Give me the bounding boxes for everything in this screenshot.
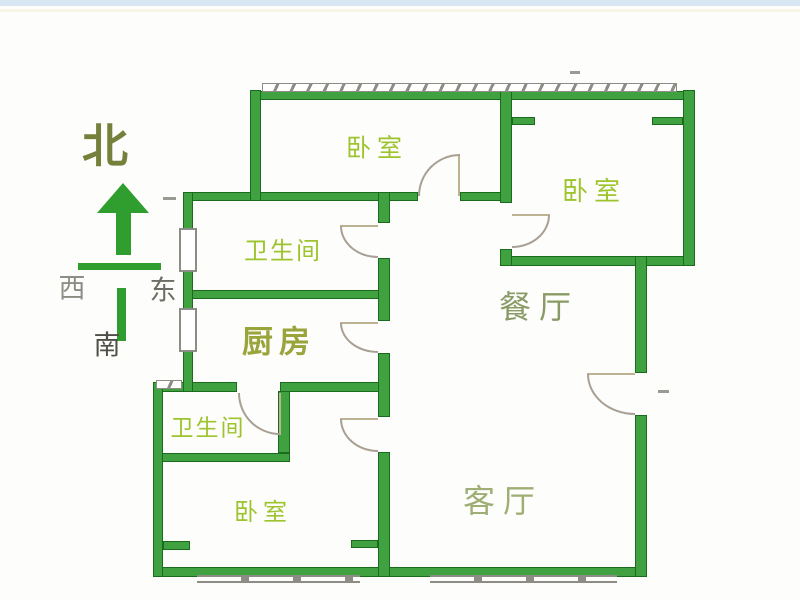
wall-left-upper (183, 192, 193, 392)
window-small-left (156, 380, 182, 389)
wall-center-seg2 (378, 258, 390, 321)
wall-stub (351, 540, 378, 548)
wall-bathroom-upper-bottom (183, 290, 390, 299)
wall-center-seg3 (378, 353, 390, 417)
window-bottom-bedroom (197, 575, 360, 583)
wall-stub (163, 541, 190, 550)
window-left-2 (179, 308, 197, 352)
door-arc-bedroom-top (418, 154, 460, 196)
door-arc-bedroom-bottom (340, 419, 378, 452)
wall-center-seg1 (378, 192, 390, 223)
room-label-kitchen: 厨房 (242, 328, 316, 359)
stray-mark (658, 390, 669, 393)
wall-top (252, 91, 695, 100)
window-left-1 (179, 228, 197, 272)
compass-north-label: 北 (82, 123, 128, 169)
wall-bedroom-right-left-lower (500, 249, 512, 266)
room-label-dining: 餐厅 (499, 291, 579, 323)
door-arc-bedroom-right (512, 215, 550, 248)
wall-kitchen-bottom-right (280, 382, 390, 392)
door-arc-bathroom-upper (340, 226, 378, 258)
wall-left-lower (153, 382, 163, 577)
wall-stub (652, 117, 683, 125)
room-label-living: 客厅 (463, 485, 543, 517)
stray-mark (163, 197, 176, 200)
compass-west-label: 西 (59, 276, 86, 303)
north-arrow-icon (97, 183, 149, 213)
room-label-bedroom-top: 卧室 (346, 136, 408, 161)
compass-south-label: 南 (94, 333, 121, 360)
north-arrow-shaft (116, 211, 131, 255)
window-top-wall (262, 83, 677, 92)
door-arc-entry (587, 374, 635, 415)
window-bottom-living (430, 575, 617, 583)
wall-stub (512, 117, 535, 125)
door-arc-kitchen (340, 323, 378, 353)
room-label-bedroom-right: 卧室 (562, 179, 626, 205)
wall-bathroom-lower-bottom (153, 453, 290, 462)
top-blue-strip (0, 0, 800, 6)
wall-bedroom-right-bottom (500, 256, 695, 266)
compass-east-label: 东 (150, 278, 177, 305)
wall-bedroom-right-left-upper (500, 90, 512, 203)
room-label-bathroom-lower: 卫生间 (171, 418, 246, 441)
room-label-bathroom-upper: 卫生间 (244, 239, 322, 263)
wall-bedroom-right-right (683, 90, 695, 266)
wall-center-seg4 (378, 452, 390, 577)
top-cream-line (0, 9, 800, 12)
stray-mark (570, 71, 580, 74)
wall-bedroom-top-left (250, 90, 261, 201)
compass-horizontal-line (78, 263, 161, 270)
wall-right-lower (635, 415, 647, 577)
floor-plan: 北 西 东 南 卧室 (0, 0, 800, 600)
wall-right-upper (635, 256, 647, 373)
room-label-bedroom-bottom: 卧室 (234, 500, 292, 524)
